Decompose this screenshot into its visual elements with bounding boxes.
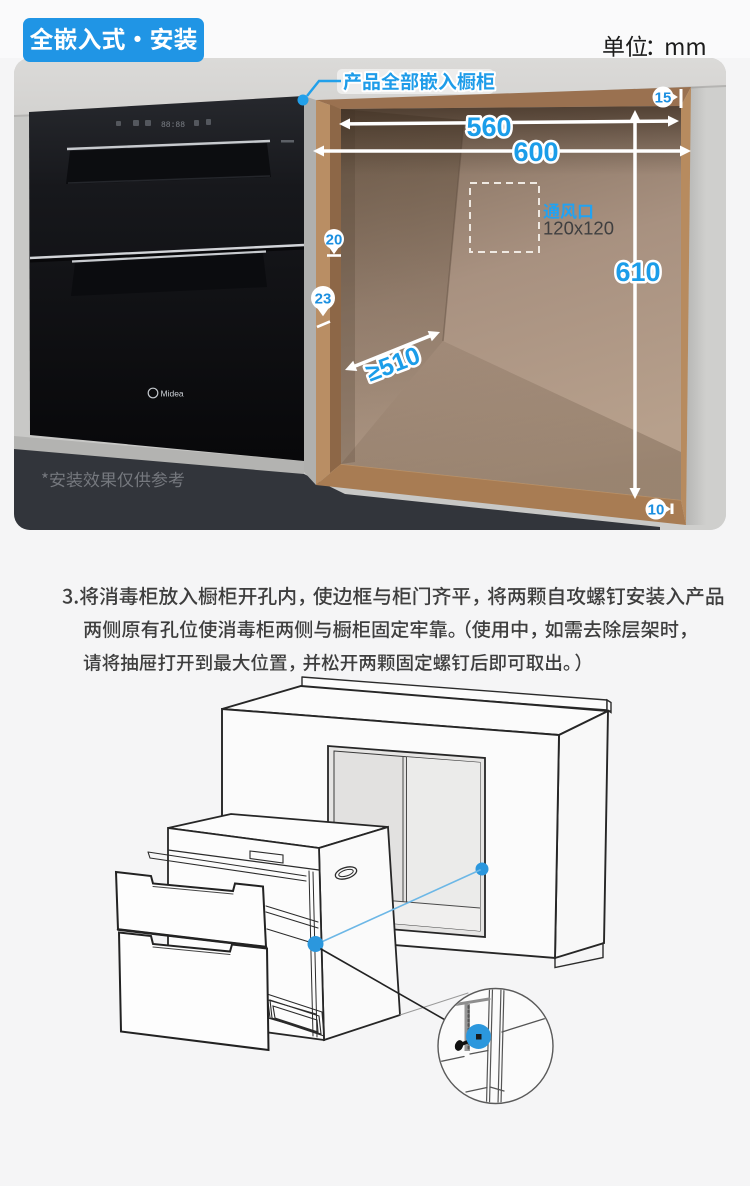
- svg-text:23: 23: [315, 290, 332, 307]
- svg-text:15: 15: [655, 89, 672, 106]
- svg-text:10: 10: [648, 501, 665, 518]
- svg-text:Midea: Midea: [161, 389, 184, 399]
- svg-text:88:88: 88:88: [161, 121, 185, 130]
- svg-text:610: 610: [615, 257, 660, 287]
- svg-text:20: 20: [326, 231, 343, 248]
- svg-text:600: 600: [513, 137, 558, 167]
- svg-text:560: 560: [466, 112, 511, 142]
- svg-text:120x120: 120x120: [543, 218, 614, 239]
